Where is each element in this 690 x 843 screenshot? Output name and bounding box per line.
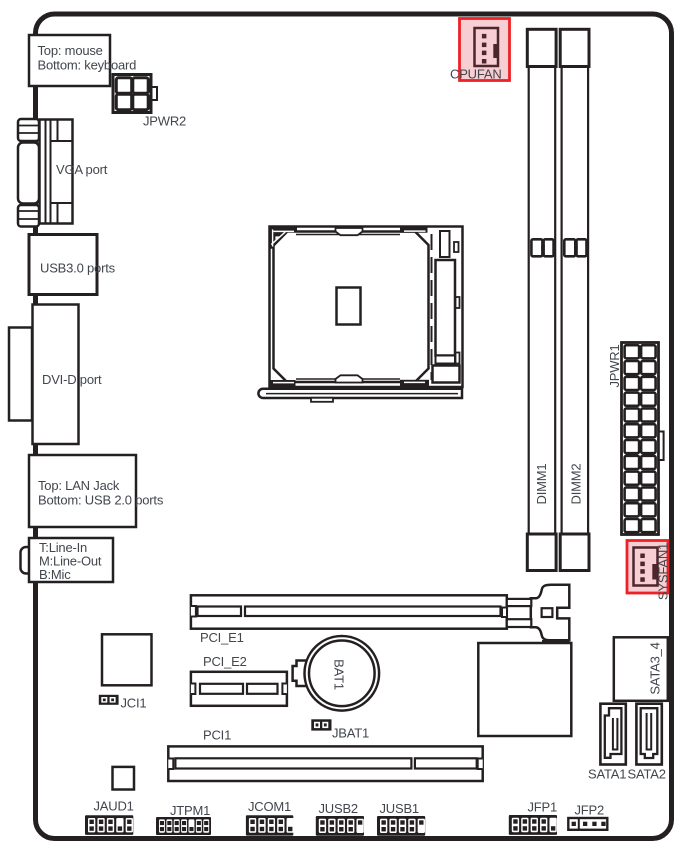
svg-text:JTPM1: JTPM1 xyxy=(170,803,210,818)
svg-text:DVI-D port: DVI-D port xyxy=(42,372,102,387)
svg-text:SATA3_4: SATA3_4 xyxy=(648,642,663,694)
svg-text:SYSFAN1: SYSFAN1 xyxy=(656,543,671,600)
svg-text:DIMM1: DIMM1 xyxy=(534,464,549,505)
svg-text:JPWR2: JPWR2 xyxy=(143,114,186,129)
svg-text:USB3.0 ports: USB3.0 ports xyxy=(40,261,116,276)
svg-text:B:Mic: B:Mic xyxy=(39,567,71,582)
svg-text:Top: LAN Jack: Top: LAN Jack xyxy=(38,478,120,493)
svg-text:PCI_E2: PCI_E2 xyxy=(203,654,247,669)
svg-text:JCI1: JCI1 xyxy=(121,696,147,711)
svg-text:PCI1: PCI1 xyxy=(203,728,231,743)
svg-text:Top: mouse: Top: mouse xyxy=(38,43,103,58)
svg-text:JAUD1: JAUD1 xyxy=(94,799,134,814)
svg-text:SATA2: SATA2 xyxy=(628,767,666,782)
svg-text:CPUFAN: CPUFAN xyxy=(450,67,502,82)
svg-text:JBAT1: JBAT1 xyxy=(332,726,369,741)
svg-text:JPWR1: JPWR1 xyxy=(607,344,622,387)
svg-text:Bottom: USB 2.0 ports: Bottom: USB 2.0 ports xyxy=(38,493,164,508)
svg-text:VGA port: VGA port xyxy=(56,162,108,177)
svg-text:SATA1: SATA1 xyxy=(588,767,626,782)
svg-text:JFP2: JFP2 xyxy=(575,803,605,818)
svg-text:Bottom: keyboard: Bottom: keyboard xyxy=(38,58,137,73)
svg-text:JFP1: JFP1 xyxy=(528,800,558,815)
svg-text:BAT1: BAT1 xyxy=(332,659,347,690)
svg-text:DIMM2: DIMM2 xyxy=(568,464,583,505)
svg-text:JUSB1: JUSB1 xyxy=(380,801,419,816)
svg-text:PCI_E1: PCI_E1 xyxy=(200,630,244,645)
svg-text:JCOM1: JCOM1 xyxy=(248,799,291,814)
svg-text:JUSB2: JUSB2 xyxy=(319,801,358,816)
